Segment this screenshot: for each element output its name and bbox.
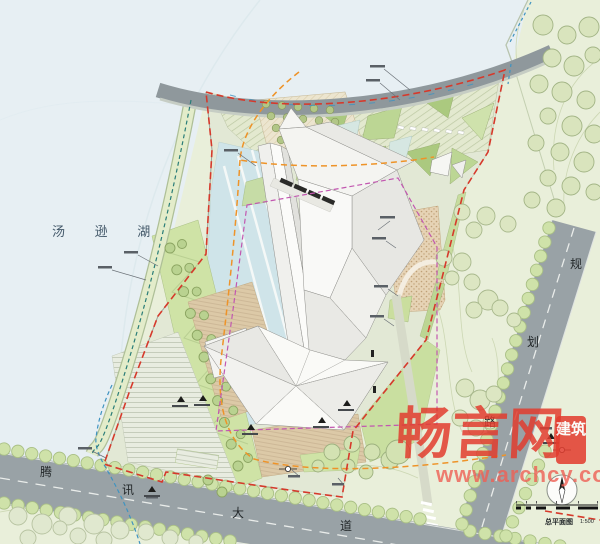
road-bottom-char-3: 大	[232, 507, 244, 519]
watermark-seal: 建筑	[556, 416, 586, 464]
road-right-char-2: 划	[527, 336, 539, 348]
road-right-char-1: 规	[570, 258, 582, 270]
drawing-title: 总平面图	[545, 517, 573, 527]
lake-label: 汤 逊 湖	[52, 221, 163, 240]
watermark-logo: 畅言网	[395, 406, 566, 462]
road-bottom-char-2: 讯	[122, 484, 134, 496]
road-bottom-char-1: 腾	[40, 466, 52, 478]
drawing-scale: 1:500	[580, 519, 594, 525]
site-plan-canvas: 汤 逊 湖 腾 讯 大 道 规 划 路 畅言网 建筑 www.archcy.co…	[0, 0, 600, 544]
watermark-url: www.archcy.com	[436, 462, 600, 488]
road-bottom-char-4: 道	[340, 520, 352, 532]
